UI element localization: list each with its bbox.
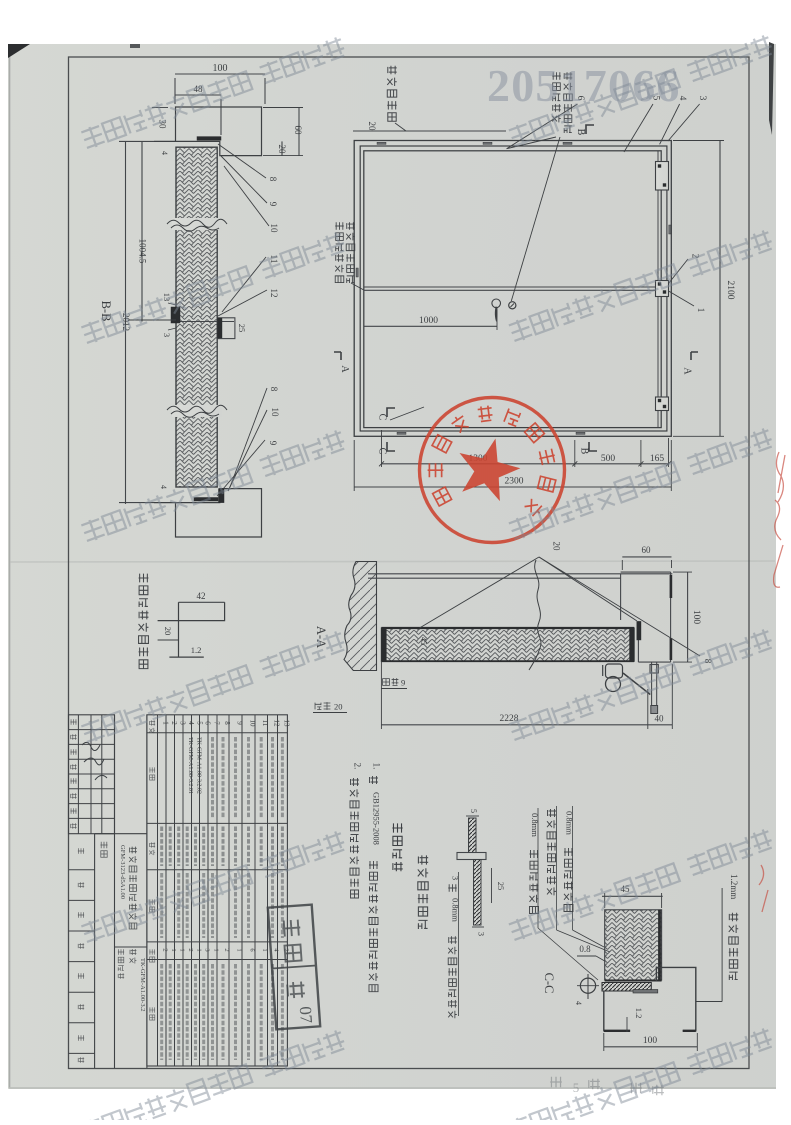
svg-text:4: 4	[187, 721, 195, 725]
svg-text:TK-GFM-A1.00-3.2.02: TK-GFM-A1.00-3.2.02	[196, 737, 202, 794]
svg-text:3: 3	[162, 333, 172, 337]
svg-text:07: 07	[296, 1006, 316, 1025]
svg-text:42: 42	[197, 591, 206, 601]
svg-text:60: 60	[642, 545, 652, 555]
svg-text:9: 9	[268, 441, 278, 446]
svg-text:0.8mm: 0.8mm	[565, 811, 575, 835]
svg-text:7: 7	[213, 721, 221, 725]
svg-text:5: 5	[196, 721, 204, 725]
svg-text:1004.5: 1004.5	[138, 239, 148, 264]
svg-text:1: 1	[213, 948, 220, 951]
svg-text:5: 5	[469, 809, 478, 813]
svg-text:8: 8	[269, 387, 279, 392]
svg-text:2: 2	[187, 948, 194, 951]
svg-text:9: 9	[401, 678, 405, 688]
svg-text:20: 20	[277, 145, 287, 155]
svg-text:165: 165	[650, 454, 665, 464]
svg-text:GFM-3123-d5A1.00: GFM-3123-d5A1.00	[119, 845, 126, 899]
svg-text:2: 2	[162, 948, 169, 951]
svg-text:4: 4	[160, 151, 169, 155]
svg-text:3: 3	[204, 948, 211, 951]
svg-text:8: 8	[268, 177, 278, 182]
svg-text:2100: 2100	[725, 281, 735, 300]
svg-text:TK-GFM-A1.00-3.2: TK-GFM-A1.00-3.2	[139, 958, 146, 1011]
svg-text:2: 2	[282, 948, 289, 951]
svg-text:6: 6	[204, 721, 212, 725]
svg-text:TK-GFM-A1.00-3.2.01: TK-GFM-A1.00-3.2.01	[187, 737, 193, 794]
svg-text:10: 10	[270, 408, 280, 418]
svg-text:1000: 1000	[419, 316, 438, 326]
svg-text:4: 4	[574, 1001, 583, 1005]
svg-text:60: 60	[293, 126, 303, 136]
svg-text:1.2mm: 1.2mm	[729, 874, 739, 899]
svg-text:500: 500	[601, 454, 616, 464]
svg-text:1: 1	[196, 948, 203, 951]
svg-text:25: 25	[237, 324, 247, 333]
svg-text:1.2: 1.2	[191, 645, 202, 655]
svg-text:20: 20	[552, 542, 562, 552]
svg-text:3: 3	[697, 96, 707, 101]
svg-text:2: 2	[223, 948, 230, 951]
svg-text:20: 20	[334, 702, 343, 712]
svg-text:GB12955-2008: GB12955-2008	[372, 792, 382, 845]
svg-text:20: 20	[163, 627, 173, 636]
svg-text:10: 10	[269, 224, 279, 234]
svg-text:4: 4	[159, 485, 168, 489]
svg-text:1: 1	[261, 948, 268, 951]
svg-text:2: 2	[170, 721, 178, 725]
svg-text:13: 13	[282, 720, 290, 728]
svg-text:3: 3	[451, 876, 461, 880]
svg-text:20: 20	[367, 122, 377, 132]
svg-text:2.: 2.	[353, 763, 363, 770]
svg-text:A: A	[682, 367, 693, 375]
svg-text:9: 9	[236, 721, 244, 725]
svg-text:10: 10	[249, 720, 257, 728]
svg-text:100: 100	[213, 63, 228, 74]
svg-text:8: 8	[223, 721, 231, 725]
svg-text:12: 12	[273, 720, 281, 728]
svg-text:3: 3	[477, 932, 486, 936]
svg-text:0.8: 0.8	[579, 944, 591, 954]
svg-text:1: 1	[236, 948, 243, 951]
svg-text:0.8mm: 0.8mm	[530, 813, 540, 837]
svg-text:5: 5	[573, 1080, 580, 1095]
svg-text:1: 1	[179, 948, 186, 951]
svg-text:45: 45	[419, 637, 428, 645]
svg-text:B: B	[579, 448, 590, 455]
svg-text:40: 40	[655, 714, 665, 724]
svg-text:9: 9	[268, 202, 278, 207]
svg-text:1: 1	[162, 721, 170, 725]
svg-text:11: 11	[261, 720, 269, 727]
svg-text:1: 1	[170, 948, 177, 951]
svg-text:1: 1	[696, 308, 706, 313]
svg-text:B: B	[575, 129, 586, 136]
svg-text:1.2: 1.2	[634, 1008, 644, 1019]
svg-text:2300: 2300	[505, 477, 524, 487]
svg-text:0.8mm: 0.8mm	[451, 898, 461, 922]
svg-text:100: 100	[691, 610, 701, 625]
svg-text:1.: 1.	[372, 763, 382, 770]
svg-text:100: 100	[643, 1036, 658, 1046]
svg-text:A: A	[339, 365, 350, 373]
svg-text:3: 3	[179, 721, 187, 725]
svg-text:C-C: C-C	[542, 973, 556, 994]
svg-text:C: C	[376, 414, 387, 421]
svg-text:25: 25	[496, 882, 506, 891]
svg-text:12: 12	[269, 289, 279, 298]
